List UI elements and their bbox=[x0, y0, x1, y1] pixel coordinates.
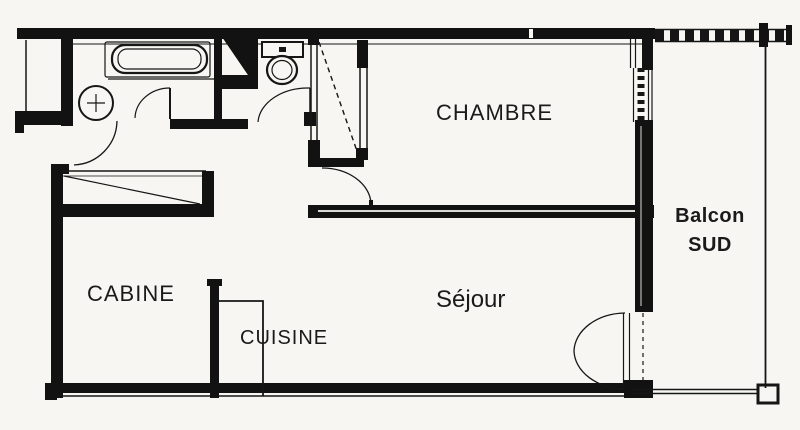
wardrobe-closet bbox=[308, 38, 368, 167]
toilet bbox=[262, 42, 303, 84]
floor-plan: CHAMBRE Séjour CABINE CUISINE Balcon SUD bbox=[0, 0, 800, 430]
room-label-balcon-line1: Balcon bbox=[654, 202, 766, 231]
room-label-balcon: Balcon SUD bbox=[654, 202, 766, 260]
washbasin bbox=[79, 86, 113, 120]
bathtub bbox=[105, 42, 214, 79]
wardrobe-dashed-diagonal bbox=[319, 42, 358, 154]
kitchen-wall bbox=[207, 279, 222, 398]
room-label-cabine: CABINE bbox=[87, 281, 175, 307]
entrance-door-arc bbox=[74, 121, 117, 165]
room-label-chambre: CHAMBRE bbox=[436, 100, 553, 126]
bedroom-door-arc bbox=[322, 168, 373, 207]
bathroom-door bbox=[135, 88, 170, 119]
wc-door bbox=[258, 88, 316, 126]
room-label-balcon-line2: SUD bbox=[654, 231, 766, 260]
cabine-closet bbox=[60, 171, 214, 217]
bedroom-livingroom-wall bbox=[308, 205, 654, 218]
duct-shaft bbox=[222, 37, 250, 78]
right-wall-windows bbox=[631, 38, 654, 312]
room-label-sejour: Séjour bbox=[436, 286, 505, 314]
room-label-cuisine: CUISINE bbox=[240, 327, 328, 350]
north-loggia bbox=[15, 40, 62, 133]
